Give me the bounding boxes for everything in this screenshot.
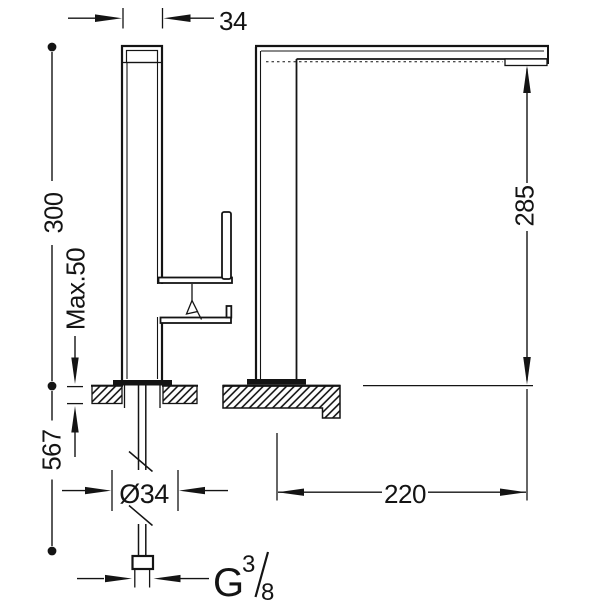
dim-max-counter [67, 336, 83, 457]
thread-fitting [133, 556, 154, 569]
arrowhead [85, 487, 111, 494]
arrowhead [278, 489, 304, 496]
arrowhead [95, 14, 122, 22]
base-plate-side [247, 379, 306, 385]
side-view [223, 45, 549, 418]
arrowhead [154, 575, 181, 582]
counter-hatch-left [92, 386, 122, 404]
arrowhead [164, 14, 191, 22]
label-top-width: 34 [219, 6, 247, 36]
dim-top-width [68, 8, 214, 29]
arrowhead [500, 489, 526, 496]
label-thread-letter: G [213, 561, 244, 600]
hose-break-1 [129, 452, 153, 472]
arrowhead [523, 357, 531, 385]
arrowhead [71, 358, 78, 385]
base-plate-front [113, 380, 172, 386]
counter-hatch-right [163, 386, 197, 404]
handle-lower-arm [161, 318, 232, 324]
arrowhead [179, 487, 205, 494]
edge-eraser [156, 284, 167, 317]
handle-riser [227, 306, 232, 318]
mechanism-arrowhead [187, 301, 198, 315]
ref-line-left [48, 43, 57, 556]
label-height: 300 [41, 192, 69, 233]
label-base-diameter: Ø34 [119, 479, 169, 509]
arrowhead [71, 406, 78, 433]
handle-lever [222, 212, 231, 279]
label-max-counter: Max.50 [61, 248, 91, 330]
ref-dot-top [48, 43, 57, 52]
faucet-technical-drawing: 34 300 Max.50 567 Ø34 285 220 G 3 8 [0, 0, 600, 600]
label-thread-denominator: 8 [261, 579, 274, 600]
label-spout-height: 285 [512, 185, 540, 226]
drawing-canvas: 34 300 Max.50 567 Ø34 285 220 G 3 8 [0, 0, 600, 600]
label-thread-numerator: 3 [242, 551, 255, 578]
cap-inner [127, 51, 158, 63]
arrowhead [105, 575, 132, 582]
label-hose-length: 567 [39, 429, 67, 470]
arrowhead [523, 66, 531, 94]
dim-spout-height [363, 66, 533, 386]
counter-hatch-side [223, 386, 340, 419]
handle-upper-arm [159, 278, 233, 284]
faucet-body-front [122, 46, 162, 382]
label-spout-reach: 220 [384, 479, 426, 509]
aerator [505, 59, 547, 66]
ref-dot-bottom [48, 547, 57, 556]
ref-dot-counter [48, 382, 57, 391]
